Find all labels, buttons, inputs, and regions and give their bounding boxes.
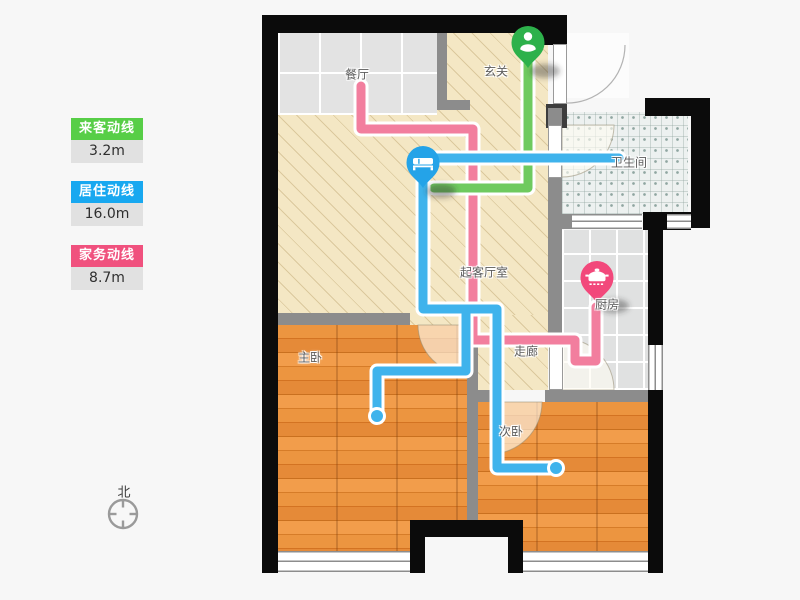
living-label: 起客厅室 xyxy=(460,264,508,281)
dining-label: 餐厅 xyxy=(345,66,369,83)
corridor-label: 走廊 xyxy=(514,343,538,360)
wall-notch-right xyxy=(508,520,523,573)
wall-foyer-stub xyxy=(437,100,470,110)
entry-alcove xyxy=(567,33,629,98)
wall-left xyxy=(262,15,278,573)
wall-bath-left-bot xyxy=(548,178,562,230)
master-bottom-window xyxy=(278,551,410,572)
legend-resident-label: 居住动线 xyxy=(71,181,143,203)
wall-bath-right xyxy=(691,98,710,228)
legend-guest-value: 3.2m xyxy=(71,140,143,163)
wall-top xyxy=(262,15,567,33)
wall-entry-step xyxy=(540,30,567,45)
legend-item-housework[interactable]: 家务动线 8.7m xyxy=(71,245,143,290)
second-bottom-window xyxy=(523,551,648,572)
legend-guest-label: 来客动线 xyxy=(71,118,143,140)
legend-item-resident[interactable]: 居住动线 16.0m xyxy=(71,181,143,226)
foyer-label: 玄关 xyxy=(484,63,508,80)
wall-living-master xyxy=(278,313,410,325)
kitchen-window xyxy=(648,345,663,390)
bathroom-window-right xyxy=(667,214,691,229)
floorplan-page: { "legend": { "items": [ {"label": "来客动线… xyxy=(0,0,800,600)
bathroom-window xyxy=(572,214,642,229)
notch-inner xyxy=(425,537,508,573)
entrance-door-leaf xyxy=(553,44,567,104)
legend-resident-value: 16.0m xyxy=(71,203,143,226)
second-bedroom-label: 次卧 xyxy=(499,423,523,440)
legend-housework-value: 8.7m xyxy=(71,267,143,290)
wall-kitchen-left xyxy=(548,230,562,336)
legend-housework-label: 家务动线 xyxy=(71,245,143,267)
wall-right-lower xyxy=(648,390,663,573)
kitchen-door-leaf xyxy=(549,336,563,390)
wall-second-top-left xyxy=(478,390,490,402)
master-bedroom-label: 主卧 xyxy=(298,349,322,366)
north-label: 北 xyxy=(117,482,130,501)
bathroom-label: 卫生间 xyxy=(611,154,647,171)
wall-kitchen-right xyxy=(648,228,663,345)
wall-bedroom-divider xyxy=(467,313,478,537)
wall-second-top-right xyxy=(545,390,648,402)
wall-notch-top xyxy=(410,520,523,537)
kitchen-label: 厨房 xyxy=(595,296,619,313)
wall-dining-foyer xyxy=(437,33,447,108)
wall-bath-bottom xyxy=(562,214,572,229)
bathroom-door-leaf xyxy=(548,125,562,178)
legend-item-guest[interactable]: 来客动线 3.2m xyxy=(71,118,143,163)
